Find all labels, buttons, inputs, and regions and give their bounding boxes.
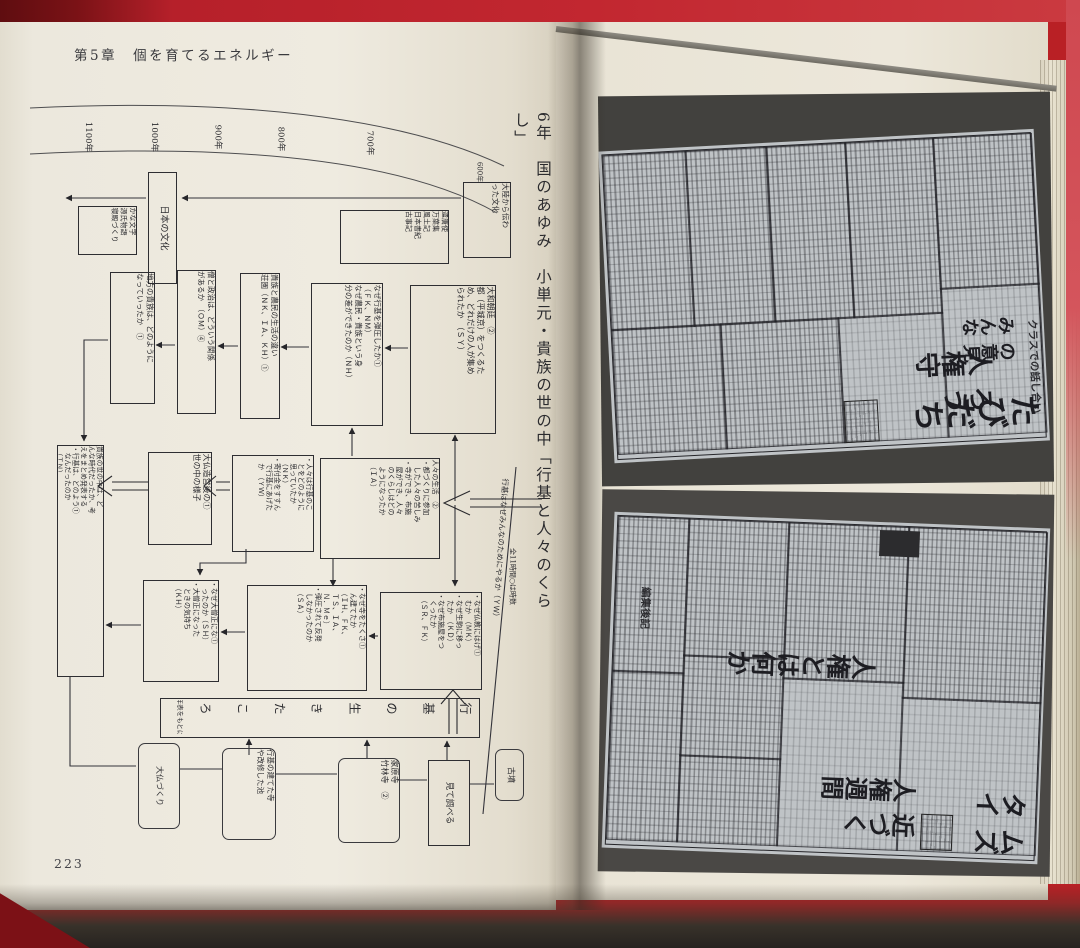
timeline-year-1000: 1000年 [146,110,162,164]
flow-box-denrai: 大陸から伝わ った文化 [463,182,511,258]
flow-wavy-iehara: 家原寺 竹林寺 ② [338,758,400,843]
masthead-tabidachi: たびだち [877,387,1043,440]
unit-title: 6年 国のあゆみ 小単元・貴族の世の中「行基と人々のくらし」 [527,112,554,632]
timeline-year-800: 800年 [272,114,287,164]
diagonal-caption: 行基はなぜみんなのためにやるか（ＹＷ） [489,478,502,690]
flow-box-yamato: 大和朝廷 ② 都（平城京）をつくるた め、どれだけの人が集め られたか （ＳＹ） [410,285,496,434]
flow-box-chiho: 地方の貴族は、どのように なっていったか ① [110,272,155,404]
flow-box-seikatsu-chigai: 貴族と農民の生活の違い 荘園（ＮＫ、ＩＡ、ＫＨ）① [240,273,280,419]
issuer-info-box [920,814,953,851]
flow-box-naze-bukkyo: ・なぜ仏教にはげ① むか （ＭＫ） ・なぜ生駒に移っ たか （ＫＤ） ・なぜ布施… [380,592,482,690]
flow-wavy-kofun: 古墳 [495,749,524,801]
dark-patch [879,530,920,558]
headline-jinken-towa-nanika: 人権とは何か [708,643,878,693]
book-photo: 第5章 個を育てるエネルギー 223 6年 国のあゆみ 小単元・貴族の世の中「行… [0,0,1080,948]
page-number: 223 [54,856,84,871]
handwriting-section [932,133,1040,290]
flow-box-kentoshi: 遣唐使 万葉集 風土記 日本書紀 古事記 [340,210,449,264]
flow-box-omoi: ・人々は行基のこ とをどのように 思っていたか （ＮＫ） ・寄付金をすすん で行… [232,455,314,552]
timeline-year-1100: 1100年 [80,110,96,164]
handwriting-section [602,151,695,331]
timeline-year-900: 900年 [209,112,224,162]
flow-box-hitobito: 人々の生活 ② ・都づくりに参加 した人々の苦しみ ・寺ができ、布施 屋ができ、… [320,458,440,559]
handwriting-section [844,138,943,318]
hours-note: 全11時間○は時数 [503,548,516,660]
chapter-header: 第5章 個を育てるエネルギー [74,44,293,64]
flow-wavy-daibutsu: 大仏づくり [138,743,180,829]
flow-box-nihon-bunka: 日本の文化 [148,172,177,284]
flow-bar-nenpyo-note: （年表をもとに） [163,700,197,734]
flow-box-matome: 貴族の世の中は、ど んな時代だったか、考 えをまとめ発表する ・行基は、どのよう… [57,445,104,677]
newspaper-times: 人権とは何か 人権週間近づく タイムズ 編集後記 [602,512,1051,864]
flow-box-kana: かな文字 源氏物語 寝殿づくり [78,206,137,255]
handwriting-section [719,317,845,449]
flow-box-daisojo: ・なぜ大僧正にな① ったのか（ＳＨ） ・大僧正になった ときの気持ち （ＫＨ） [143,580,219,682]
masthead-times: タイムズ [964,785,1028,851]
section-label-henshu-koki: 編集後記 [627,586,652,655]
flow-box-danatsu: なぜ行基を弾圧したか① （ＦＫ、ＮＭ） なぜ農民・貴族という身 分の差ができたの… [311,283,383,426]
flow-box-mite-shiraberu: 見て調べる [428,760,470,846]
newspaper-tabidachi: みんなの意見 人権守ろう クラスでの話し合い たびだち [598,129,1050,463]
timeline-year-700: 700年 [361,118,376,168]
newspaper-photo-bottom: 人権とは何か 人権週間近づく タイムズ 編集後記 [598,489,1055,876]
flow-box-naze-tera: ・なぜ寺をたくさ① ん建てたか （ＩＨ、ＦＫ、 ＴＳ、ＩＡ、 Ｎ．Ｍｅ） ・弾圧… [247,585,367,691]
handwriting-section [765,143,855,323]
handwriting-section [683,519,790,661]
handwriting-section [612,323,728,455]
flow-bar-nenpyo-label: 行基の生きたころ [200,700,472,734]
handwriting-section [676,754,781,846]
newspaper-photo-top: みんなの意見 人権守ろう クラスでの話し合い たびだち [598,92,1054,487]
handwriting-section [902,527,1048,704]
table-surface-right [1066,0,1080,560]
flow-box-daibutsu-zoei: 大仏造営後の① 世の中の様子 [148,452,212,545]
handwriting-section [684,147,776,327]
table-surface-top [0,0,1080,22]
flow-wavy-teraike: 行基の建てた寺 や改修した池 [222,748,276,840]
headline-jinken-shukan: 人権週間近づく [798,769,919,843]
issuer-info-box [844,399,880,443]
timeline-curves [30,105,504,213]
flow-box-so-seiji: 僧と政治は、どういう関係 があるか （ＯＭ）④ [177,270,216,414]
handwriting-section [606,670,684,843]
